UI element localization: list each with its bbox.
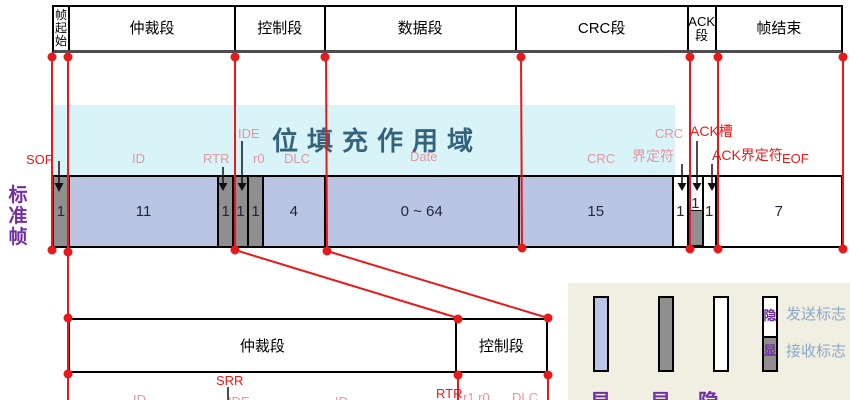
label-extended-id-1: ID (133, 392, 146, 400)
field-ack-delimiter: 1 (704, 177, 717, 246)
segment-header-row: 帧起始 仲裁段 控制段 数据段 CRC段 ACK段 帧结束 (52, 5, 843, 53)
label-r0: r0 (253, 151, 265, 166)
legend-below-char-1: 显 (590, 386, 611, 400)
label-extended-id-2: ID (335, 394, 348, 400)
legend-send-flag-label: 发送标志 (786, 303, 846, 324)
can-frame-structure-diagram: 帧起始 仲裁段 控制段 数据段 CRC段 ACK段 帧结束 位填充作用域 SOF… (0, 0, 850, 400)
label-crc: CRC (587, 151, 615, 166)
segment-header-crc: CRC段 (517, 7, 689, 50)
bit-fields-row: 1 11 1 1 1 4 0 ~ 64 15 1 1 1 7 (52, 175, 843, 248)
label-extended-r1r0: r1 r0 (463, 390, 490, 400)
segment-header-arbitration: 仲裁段 (70, 7, 236, 50)
field-eof: 7 (717, 177, 841, 246)
legend-slot-recessive-char: 隐 (762, 305, 778, 324)
legend-below-char-3: 隐 (698, 386, 719, 400)
legend-bar-recessive-level (713, 296, 729, 372)
extended-frame-segment-row: 仲裁段 控制段 (68, 318, 548, 373)
segment-header-frame-start: 帧起始 (54, 7, 70, 50)
legend-bar-dominant-level (658, 296, 674, 372)
segment-header-data: 数据段 (326, 7, 517, 50)
field-ide: 1 (234, 177, 249, 246)
label-ack-delimiter: ACK界定符 (712, 145, 783, 165)
segment-header-control: 控制段 (236, 7, 326, 50)
segment-header-frame-end: 帧结束 (717, 7, 841, 50)
extended-control-segment: 控制段 (457, 320, 546, 371)
label-crc-delimiter-line2: 界定符 (632, 146, 674, 166)
legend-receive-flag-label: 接收标志 (786, 340, 846, 361)
field-id: 11 (70, 177, 219, 246)
frame-type-label: 标准帧 (7, 185, 29, 248)
segment-header-ack: ACK段 (689, 7, 717, 50)
label-eof: EOF (782, 151, 809, 166)
label-extended-dlc: DLC (512, 390, 538, 400)
label-dlc: DLC (284, 151, 310, 166)
label-extended-rtr: RTR (436, 386, 462, 400)
label-rtr: RTR (203, 151, 229, 166)
extended-arbitration-segment: 仲裁段 (70, 320, 457, 371)
label-id: ID (132, 151, 145, 166)
field-crc-delimiter: 1 (674, 177, 689, 246)
field-r0: 1 (249, 177, 264, 246)
field-ack-slot: 1 (689, 177, 704, 246)
field-data: 0 ~ 64 (326, 177, 520, 246)
ack-slot-dominant-block (688, 210, 703, 246)
field-dlc: 4 (264, 177, 326, 246)
label-date: Date (410, 149, 437, 164)
label-ide: IDE (238, 126, 260, 141)
legend-bar-either-level (593, 296, 609, 372)
field-sof: 1 (54, 177, 70, 246)
field-rtr: 1 (219, 177, 234, 246)
legend-slot-dominant-char: 显 (762, 340, 778, 359)
legend-below-char-2: 显 (650, 386, 671, 400)
label-srr: SRR (216, 373, 243, 388)
field-crc: 15 (520, 177, 674, 246)
label-crc-delimiter-line1: CRC (655, 126, 683, 141)
label-extended-ide: IDE (228, 394, 250, 400)
label-sof: SOF (26, 152, 53, 167)
label-ack-slot: ACK槽 (690, 121, 733, 141)
legend-panel: 隐 显 发送标志 接收标志 显 显 隐 (568, 283, 850, 400)
